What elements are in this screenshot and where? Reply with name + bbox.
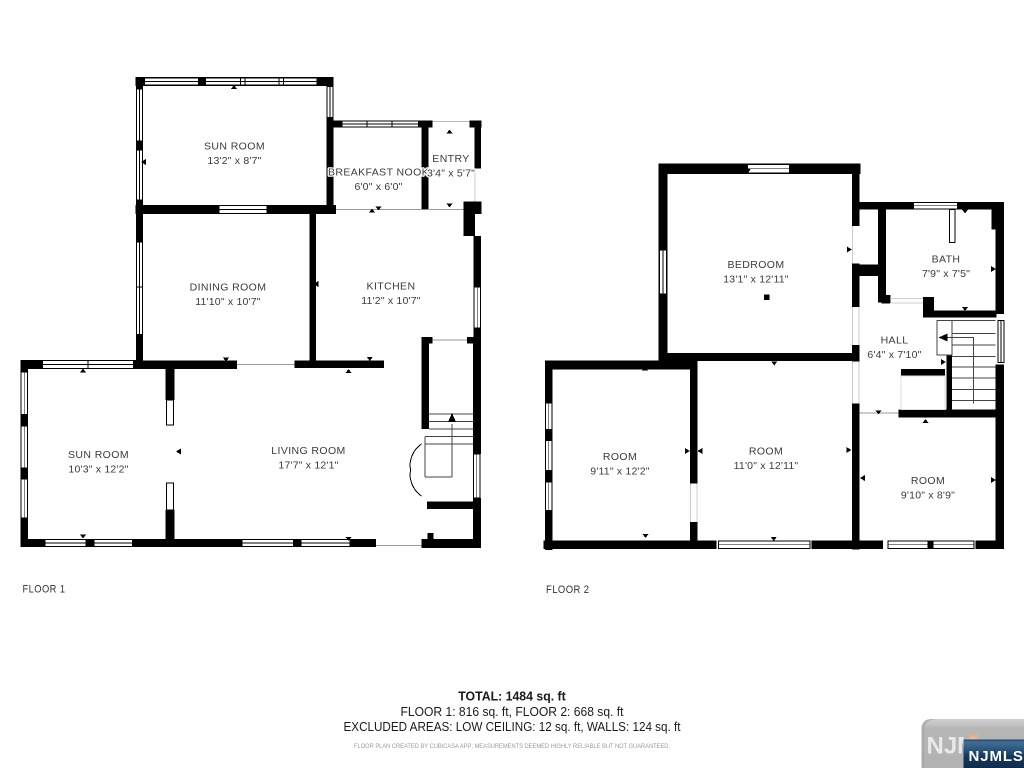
svg-text:11'2" x 10'7": 11'2" x 10'7" bbox=[361, 295, 420, 307]
svg-text:BREAKFAST NOOK: BREAKFAST NOOK bbox=[328, 167, 429, 179]
svg-text:13'1" x 12'11": 13'1" x 12'11" bbox=[723, 274, 789, 286]
svg-text:FLOOR 2: FLOOR 2 bbox=[546, 584, 590, 596]
svg-text:BEDROOM: BEDROOM bbox=[727, 259, 784, 271]
svg-text:KITCHEN: KITCHEN bbox=[367, 281, 416, 293]
svg-text:HALL: HALL bbox=[881, 335, 909, 347]
svg-text:7'9" x 7'5": 7'9" x 7'5" bbox=[922, 268, 970, 280]
svg-text:9'11" x 12'2": 9'11" x 12'2" bbox=[590, 466, 649, 478]
svg-text:10'3" x 12'2": 10'3" x 12'2" bbox=[68, 464, 128, 476]
svg-text:LIVING ROOM: LIVING ROOM bbox=[271, 445, 345, 457]
svg-text:ROOM: ROOM bbox=[603, 451, 637, 463]
svg-text:17'7" x 12'1": 17'7" x 12'1" bbox=[278, 460, 338, 472]
svg-text:6'0" x 6'0": 6'0" x 6'0" bbox=[354, 181, 402, 193]
svg-text:NJMLS: NJMLS bbox=[969, 748, 1024, 765]
svg-text:11'10" x 10'7": 11'10" x 10'7" bbox=[195, 296, 261, 308]
svg-text:SUN ROOM: SUN ROOM bbox=[68, 449, 129, 461]
svg-text:TOTAL: 1484 sq. ft: TOTAL: 1484 sq. ft bbox=[458, 689, 566, 704]
svg-text:FLOOR PLAN CREATED BY CUBICASA: FLOOR PLAN CREATED BY CUBICASA APP; MEAS… bbox=[354, 743, 670, 750]
svg-text:SUN ROOM: SUN ROOM bbox=[204, 141, 265, 153]
svg-text:FLOOR 1: 816 sq. ft, FLOOR 2:: FLOOR 1: 816 sq. ft, FLOOR 2: 668 sq. ft bbox=[401, 704, 624, 719]
svg-text:DINING ROOM: DINING ROOM bbox=[190, 282, 267, 294]
svg-text:ROOM: ROOM bbox=[749, 446, 783, 458]
svg-text:3'4" x 5'7": 3'4" x 5'7" bbox=[427, 168, 475, 180]
svg-text:11'0" x 12'11": 11'0" x 12'11" bbox=[734, 460, 799, 472]
svg-text:BATH: BATH bbox=[932, 254, 961, 266]
svg-text:EXCLUDED AREAS: LOW CEILING: 1: EXCLUDED AREAS: LOW CEILING: 12 sq. ft, … bbox=[344, 719, 681, 734]
svg-text:FLOOR 1: FLOOR 1 bbox=[23, 584, 66, 596]
svg-text:ENTRY: ENTRY bbox=[432, 153, 469, 165]
svg-text:13'2" x 8'7": 13'2" x 8'7" bbox=[207, 155, 261, 167]
svg-text:6'4" x 7'10": 6'4" x 7'10" bbox=[867, 349, 921, 361]
svg-text:ROOM: ROOM bbox=[911, 475, 945, 487]
svg-text:9'10" x 8'9": 9'10" x 8'9" bbox=[901, 490, 955, 502]
